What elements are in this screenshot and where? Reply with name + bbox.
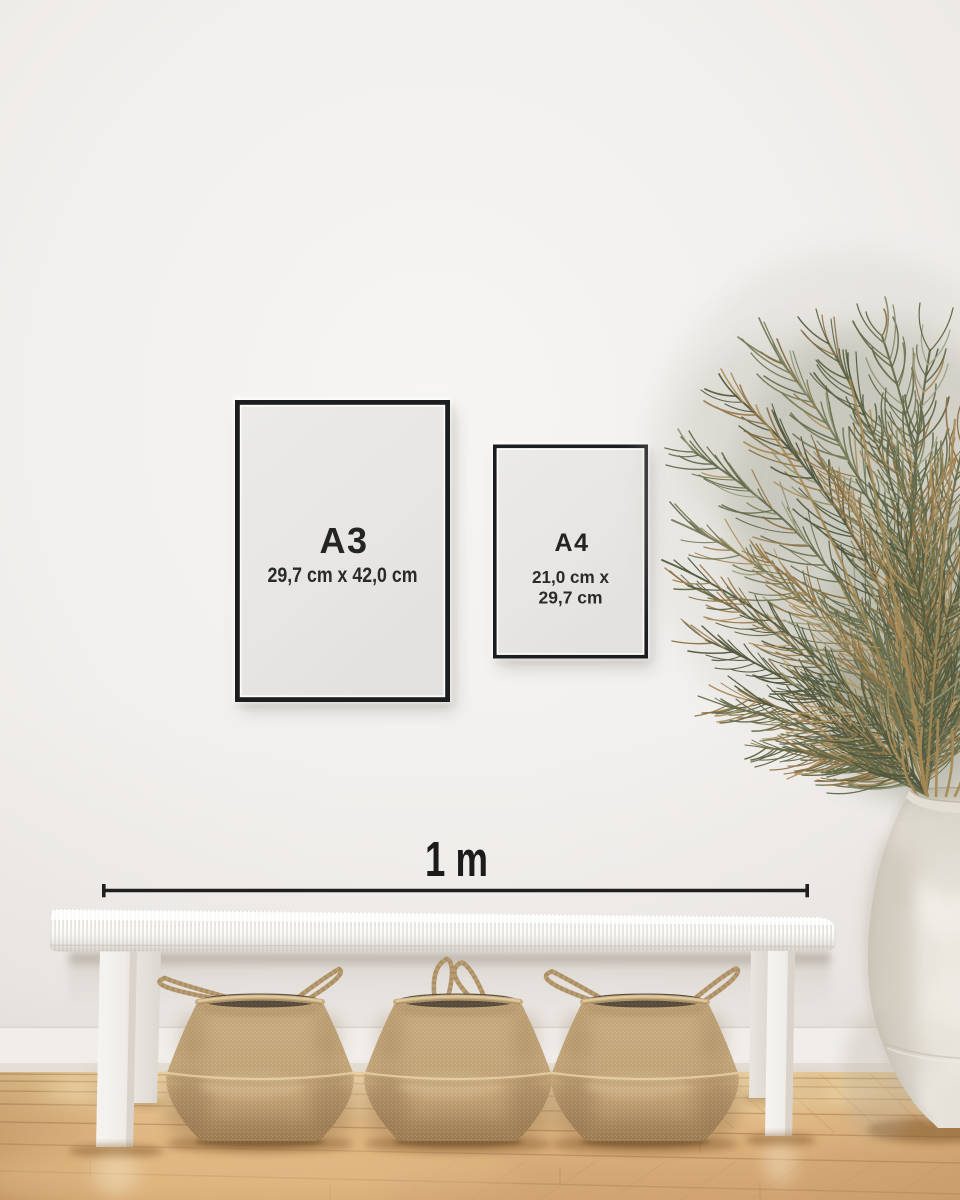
svg-text:29,7 cm x 42,0 cm: 29,7 cm x 42,0 cm	[268, 564, 418, 587]
svg-text:A3: A3	[319, 520, 368, 561]
svg-text:A4: A4	[555, 529, 590, 557]
svg-text:29,7 cm: 29,7 cm	[539, 587, 603, 607]
svg-text:1 m: 1 m	[425, 833, 488, 887]
svg-text:21,0 cm x: 21,0 cm x	[532, 567, 609, 587]
